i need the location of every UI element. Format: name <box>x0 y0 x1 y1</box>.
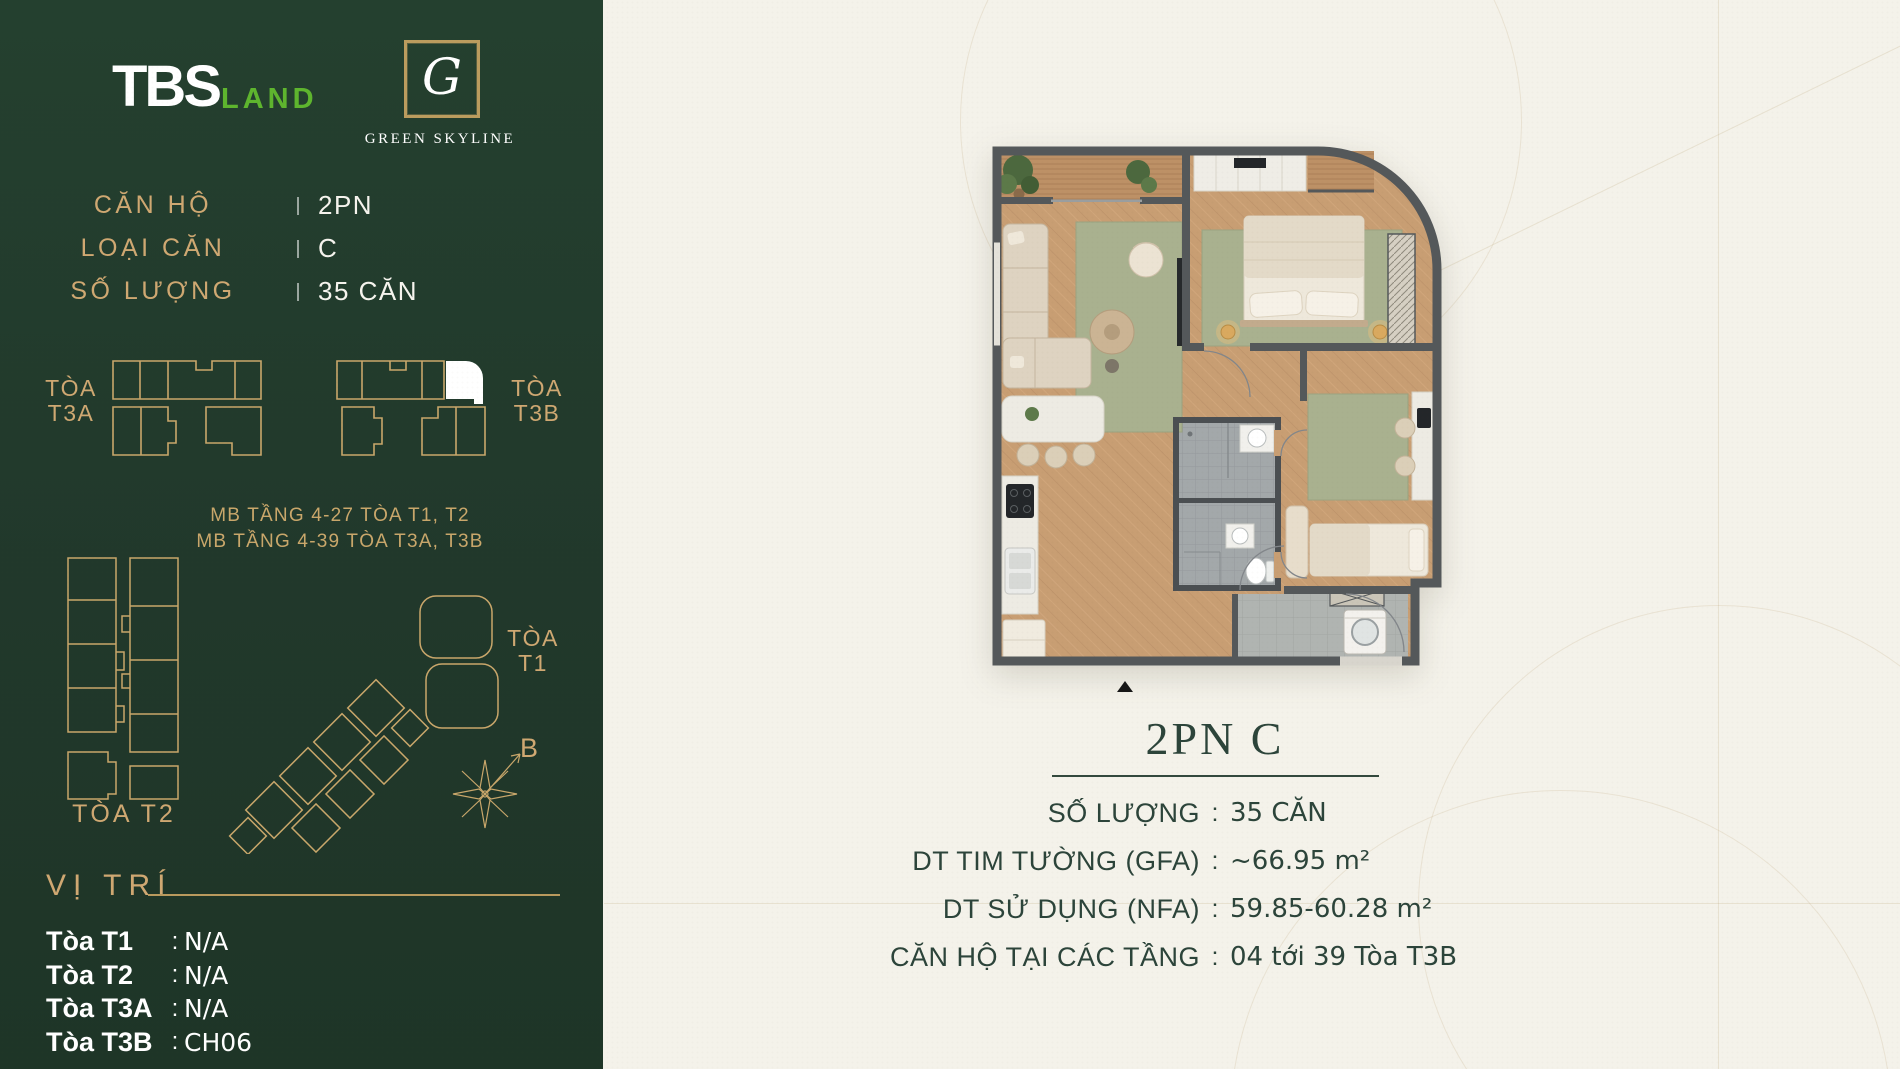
project-name: GREEN SKYLINE <box>352 131 528 148</box>
spec-row: CĂN HỘ 2PN <box>28 184 478 227</box>
spec-value: C <box>318 233 478 264</box>
tower-t1-label: TÒA T1 <box>500 626 566 676</box>
tower-t3a-label: TÒA T3A <box>38 376 104 426</box>
spec-label: LOẠI CĂN <box>28 234 278 263</box>
location-row: Tòa T1 : N/A <box>46 925 334 959</box>
compass-icon <box>448 732 526 834</box>
highlighted-unit <box>446 361 483 399</box>
unit-specs: CĂN HỘ 2PN LOẠI CĂN C SỐ LƯỢNG 35 CĂN <box>28 184 478 313</box>
divider <box>297 240 299 258</box>
land-logo-text: LAND <box>221 85 318 114</box>
location-row: Tòa T3A : N/A <box>46 992 334 1026</box>
t2-floorplate-diagram <box>66 556 181 802</box>
detail-row: DT TIM TƯỜNG (GFA) : ~66.95 m² <box>690 837 1740 885</box>
floor-range-note: MB TẦNG 4-27 TÒA T1, T2 MB TẦNG 4-39 TÒA… <box>120 503 560 555</box>
detail-row: SỐ LƯỢNG : 35 CĂN <box>690 789 1740 837</box>
plan-details: SỐ LƯỢNG : 35 CĂN DT TIM TƯỜNG (GFA) : ~… <box>690 789 1740 981</box>
spec-row: LOẠI CĂN C <box>28 227 478 270</box>
location-row: Tòa T3B : CH06 <box>46 1026 334 1060</box>
spec-value: 35 CĂN <box>318 276 478 307</box>
detail-row: CĂN HỘ TẠI CÁC TẦNG : 04 tới 39 Tòa T3B <box>690 933 1740 981</box>
plan-title-rule <box>1052 775 1379 777</box>
spec-label: SỐ LƯỢNG <box>28 277 278 306</box>
spec-label: CĂN HỘ <box>28 191 278 220</box>
plan-title: 2PN C <box>915 712 1515 765</box>
compass-direction-label: B <box>520 733 538 764</box>
tower-t3b-label: TÒA T3B <box>504 376 570 426</box>
tower-t2-label: TÒA T2 <box>60 800 188 829</box>
plan-entry-marker-icon <box>1117 681 1133 692</box>
green-skyline-monogram: G <box>404 40 480 118</box>
apartment-floorplan <box>988 142 1448 682</box>
detail-row: DT SỬ DỤNG (NFA) : 59.85-60.28 m² <box>690 885 1740 933</box>
tbs-land-logo: TBS LAND <box>112 58 318 116</box>
t3b-floorplate-diagram <box>334 358 496 460</box>
divider <box>297 283 299 301</box>
location-row: Tòa T2 : N/A <box>46 959 334 993</box>
location-table: Tòa T1 : N/A Tòa T2 : N/A Tòa T3A : N/A … <box>46 925 334 1059</box>
spec-value: 2PN <box>318 190 478 221</box>
brochure-page: TBS LAND G GREEN SKYLINE CĂN HỘ 2PN LOẠI… <box>0 0 1900 1069</box>
divider <box>297 197 299 215</box>
location-title: VỊ TRÍ <box>46 869 172 903</box>
monogram-g: G <box>422 52 462 102</box>
t3a-floorplate-diagram <box>110 358 272 460</box>
tbs-logo-text: TBS <box>112 58 219 116</box>
location-title-rule <box>148 894 560 896</box>
spec-row: SỐ LƯỢNG 35 CĂN <box>28 270 478 313</box>
sidebar: TBS LAND G GREEN SKYLINE CĂN HỘ 2PN LOẠI… <box>0 0 603 1069</box>
